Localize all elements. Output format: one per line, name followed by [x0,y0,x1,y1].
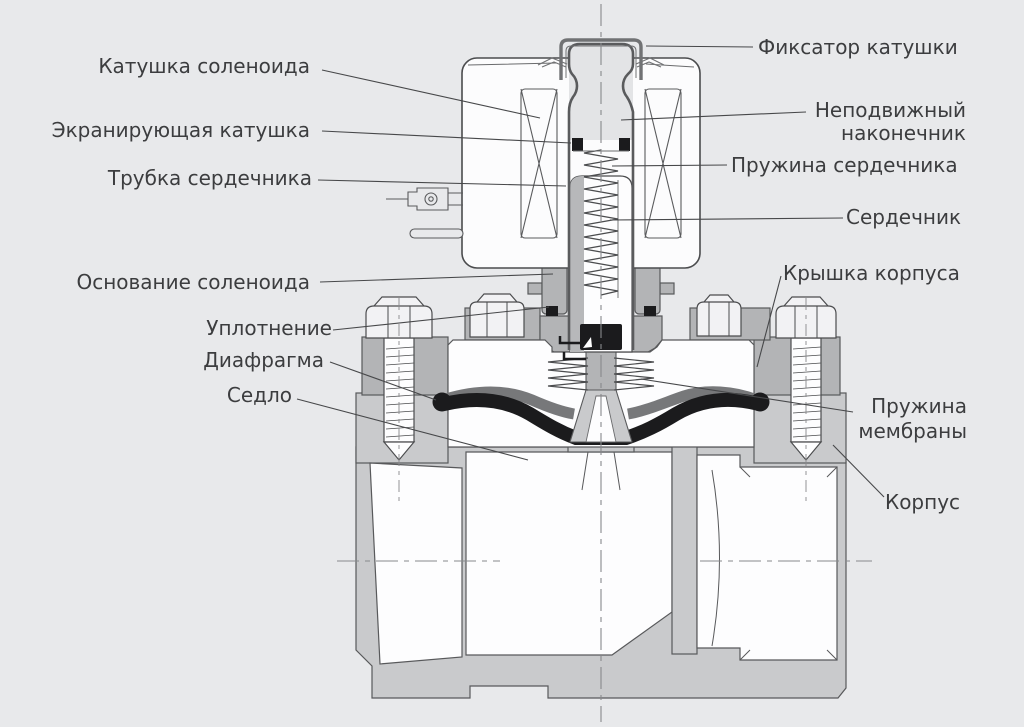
central-cavity [466,452,672,655]
label-shading-coil: Экранирующая катушка [52,119,310,142]
base-gasket-right [644,306,656,316]
label-diaphragm: Диафрагма [203,349,324,372]
label-fixed-plug: Неподвижный наконечник [798,99,966,145]
bolt-rear-left [470,294,524,337]
shading-ring-left [572,138,583,151]
solenoid-valve-diagram-page: Катушка соленоида Экранирующая катушка Т… [0,0,1024,727]
outlet-port-cavity [697,455,837,660]
inlet-port-cavity [370,463,462,664]
label-seat: Седло [227,384,292,407]
label-membrane-spring: Пружина мембраны [845,394,967,444]
label-core: Сердечник [846,206,961,229]
label-core-spring: Пружина сердечника [731,154,958,177]
body-partition [672,440,697,654]
label-seal: Уплотнение [206,317,332,340]
diaphragm-bead-right [751,393,770,412]
label-core-tube: Трубка сердечника [108,167,312,190]
label-coil: Катушка соленоида [98,55,310,78]
label-coil-retainer: Фиксатор катушки [758,36,958,59]
label-body: Корпус [885,491,960,514]
label-solenoid-base: Основание соленоида [76,271,310,294]
diaphragm-bead-left [433,393,452,412]
label-body-cover: Крышка корпуса [783,262,960,285]
shading-ring-right [619,138,630,151]
